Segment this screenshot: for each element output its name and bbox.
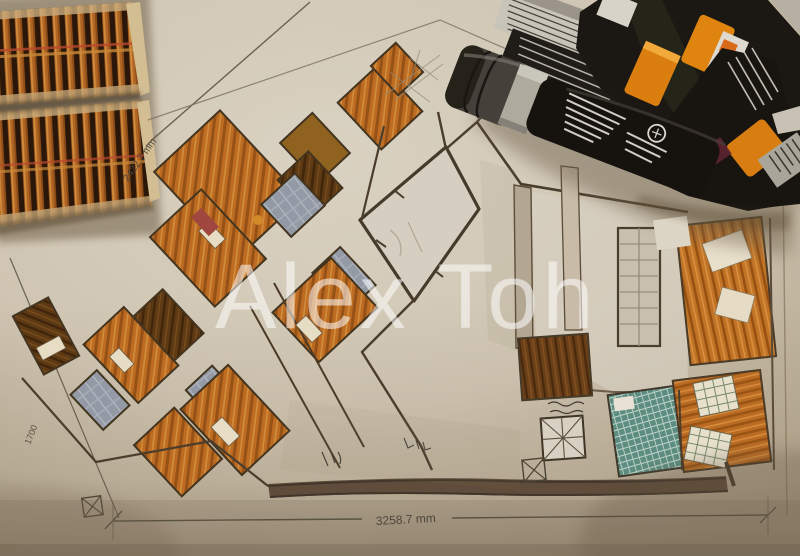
- svg-text:Alex Toh: Alex Toh: [215, 246, 597, 348]
